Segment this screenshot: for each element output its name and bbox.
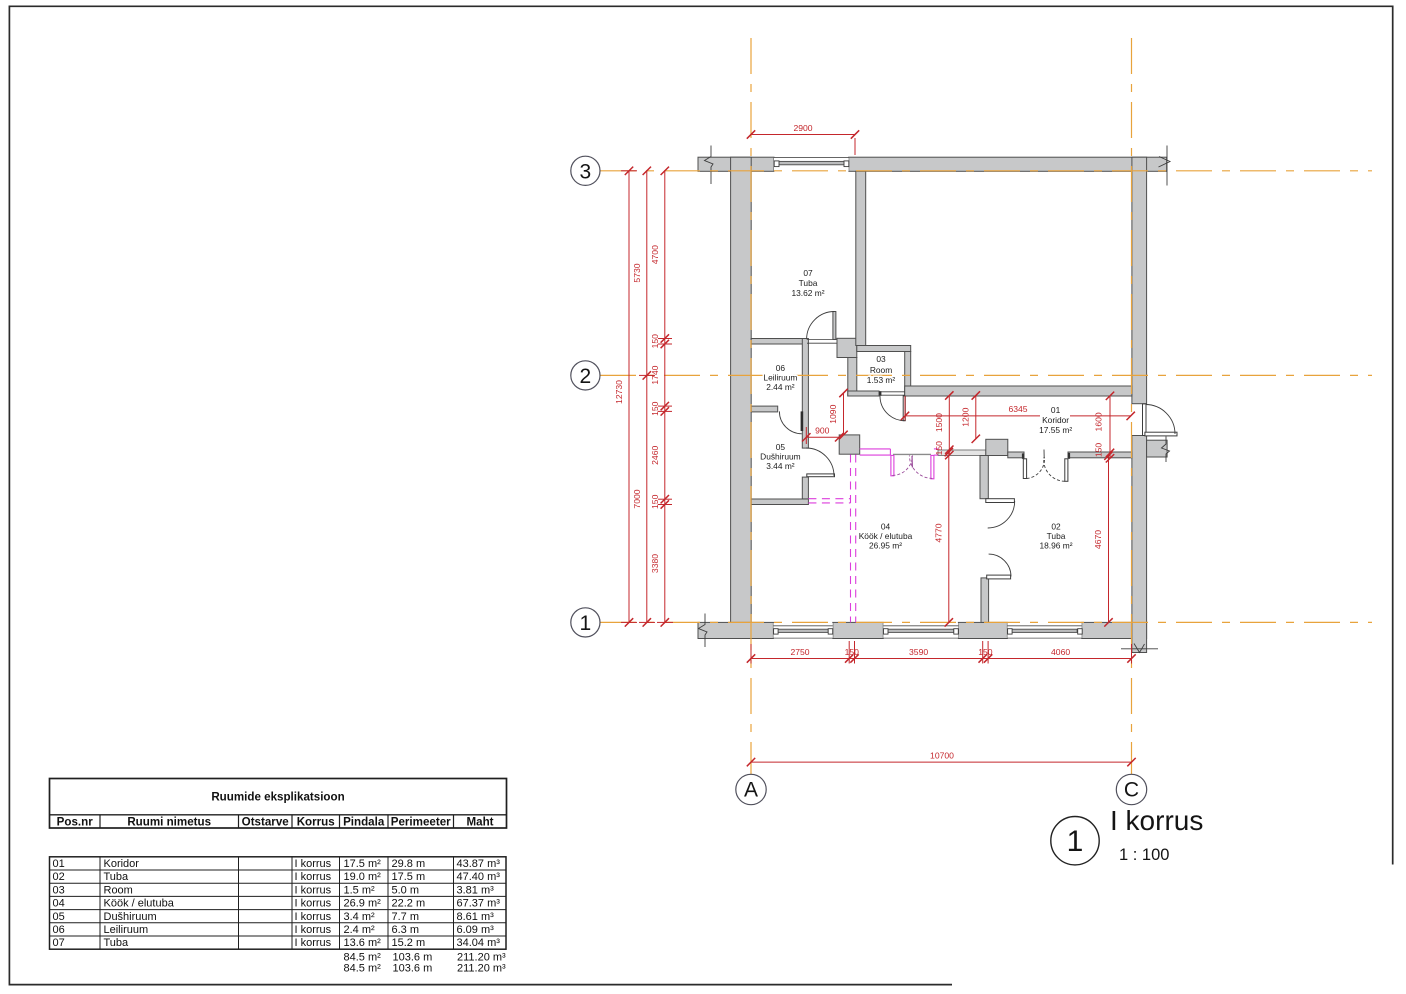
svg-text:I korrus: I korrus bbox=[295, 937, 332, 949]
svg-text:17.5 m: 17.5 m bbox=[392, 871, 426, 883]
svg-text:Köök / elutuba: Köök / elutuba bbox=[859, 531, 913, 541]
svg-text:47.40 m³: 47.40 m³ bbox=[457, 871, 501, 883]
svg-text:5730: 5730 bbox=[632, 263, 642, 282]
svg-text:17.55 m²: 17.55 m² bbox=[1039, 425, 1072, 435]
svg-text:6.09 m³: 6.09 m³ bbox=[457, 924, 495, 936]
svg-text:1740: 1740 bbox=[650, 365, 660, 384]
svg-text:5.0 m: 5.0 m bbox=[392, 884, 420, 896]
svg-text:7.7 m: 7.7 m bbox=[392, 911, 420, 923]
svg-text:1.53 m²: 1.53 m² bbox=[867, 375, 896, 385]
svg-text:1200: 1200 bbox=[961, 407, 971, 426]
svg-text:1.5 m²: 1.5 m² bbox=[344, 884, 376, 896]
svg-text:2: 2 bbox=[580, 365, 592, 388]
svg-text:2900: 2900 bbox=[793, 123, 812, 133]
svg-text:15.2 m: 15.2 m bbox=[392, 937, 426, 949]
svg-text:2460: 2460 bbox=[650, 446, 660, 465]
svg-text:150: 150 bbox=[1094, 443, 1104, 458]
svg-text:I korrus: I korrus bbox=[295, 871, 332, 883]
svg-text:6.3 m: 6.3 m bbox=[392, 924, 420, 936]
svg-text:Otstarve: Otstarve bbox=[242, 816, 290, 829]
svg-text:I korrus: I korrus bbox=[295, 898, 332, 910]
svg-text:Koridor: Koridor bbox=[104, 858, 140, 870]
svg-text:1: 1 bbox=[580, 612, 592, 635]
svg-text:Pos.nr: Pos.nr bbox=[57, 816, 94, 829]
svg-text:02: 02 bbox=[53, 871, 65, 883]
svg-text:Maht: Maht bbox=[466, 816, 493, 829]
svg-text:Leiliruum: Leiliruum bbox=[104, 924, 149, 936]
svg-text:150: 150 bbox=[978, 647, 993, 657]
svg-text:04: 04 bbox=[881, 522, 891, 532]
svg-text:05: 05 bbox=[53, 911, 65, 923]
svg-text:I korrus: I korrus bbox=[295, 858, 332, 870]
svg-text:150: 150 bbox=[845, 647, 860, 657]
svg-text:150: 150 bbox=[650, 334, 660, 349]
svg-text:7000: 7000 bbox=[632, 489, 642, 508]
svg-text:I korrus: I korrus bbox=[295, 924, 332, 936]
svg-text:1: 1 bbox=[1067, 825, 1084, 858]
svg-text:4670: 4670 bbox=[1093, 530, 1103, 549]
svg-text:103.6 m: 103.6 m bbox=[393, 963, 433, 975]
svg-text:Tuba: Tuba bbox=[799, 278, 818, 288]
svg-text:03: 03 bbox=[53, 884, 65, 896]
svg-text:2750: 2750 bbox=[790, 647, 809, 657]
svg-text:Tuba: Tuba bbox=[104, 871, 130, 883]
svg-text:Tuba: Tuba bbox=[104, 937, 130, 949]
svg-text:67.37 m³: 67.37 m³ bbox=[457, 898, 501, 910]
svg-text:22.2 m: 22.2 m bbox=[392, 898, 426, 910]
svg-text:Koridor: Koridor bbox=[1042, 415, 1069, 425]
svg-text:Korrus: Korrus bbox=[297, 816, 335, 829]
svg-text:A: A bbox=[744, 779, 758, 802]
svg-text:13.6 m²: 13.6 m² bbox=[344, 937, 382, 949]
svg-text:4060: 4060 bbox=[1051, 647, 1070, 657]
svg-text:2.4 m²: 2.4 m² bbox=[344, 924, 376, 936]
svg-text:1500: 1500 bbox=[934, 413, 944, 432]
svg-text:900: 900 bbox=[815, 426, 830, 436]
svg-text:150: 150 bbox=[934, 441, 944, 456]
svg-text:3.81 m³: 3.81 m³ bbox=[457, 884, 495, 896]
svg-text:84.5 m²: 84.5 m² bbox=[344, 963, 382, 975]
svg-text:4770: 4770 bbox=[934, 523, 944, 542]
svg-text:3.4 m²: 3.4 m² bbox=[344, 911, 376, 923]
svg-text:Ruumi nimetus: Ruumi nimetus bbox=[127, 816, 211, 829]
svg-text:Ruumide eksplikatsioon: Ruumide eksplikatsioon bbox=[211, 791, 344, 804]
svg-text:Dušhiruum: Dušhiruum bbox=[104, 911, 157, 923]
svg-text:1600: 1600 bbox=[1094, 412, 1104, 431]
svg-text:3.44 m²: 3.44 m² bbox=[766, 461, 795, 471]
svg-text:3: 3 bbox=[580, 160, 592, 183]
svg-text:3590: 3590 bbox=[909, 647, 928, 657]
svg-text:17.5 m²: 17.5 m² bbox=[344, 858, 382, 870]
svg-text:06: 06 bbox=[776, 363, 786, 373]
svg-text:1090: 1090 bbox=[828, 404, 838, 423]
svg-text:I korrus: I korrus bbox=[295, 911, 332, 923]
svg-text:26.9 m²: 26.9 m² bbox=[344, 898, 382, 910]
svg-text:3380: 3380 bbox=[650, 554, 660, 573]
svg-text:Perimeeter: Perimeeter bbox=[391, 816, 451, 829]
svg-text:02: 02 bbox=[1051, 522, 1061, 532]
svg-text:43.87 m³: 43.87 m³ bbox=[457, 858, 501, 870]
svg-text:06: 06 bbox=[53, 924, 65, 936]
svg-text:34.04 m³: 34.04 m³ bbox=[457, 937, 501, 949]
svg-text:12730: 12730 bbox=[614, 380, 624, 404]
svg-text:04: 04 bbox=[53, 898, 65, 910]
svg-text:Room: Room bbox=[104, 884, 133, 896]
svg-text:2.44 m²: 2.44 m² bbox=[766, 382, 795, 392]
svg-text:10700: 10700 bbox=[930, 750, 954, 760]
svg-text:01: 01 bbox=[53, 858, 65, 870]
svg-text:03: 03 bbox=[876, 354, 886, 364]
svg-text:Pindala: Pindala bbox=[343, 816, 385, 829]
svg-text:26.95 m²: 26.95 m² bbox=[869, 541, 902, 551]
svg-text:Dušhiruum: Dušhiruum bbox=[760, 452, 801, 462]
svg-text:13.62 m²: 13.62 m² bbox=[791, 288, 824, 298]
svg-text:4700: 4700 bbox=[650, 245, 660, 264]
svg-text:150: 150 bbox=[650, 401, 660, 416]
svg-text:I korrus: I korrus bbox=[1110, 805, 1203, 836]
svg-text:18.96 m²: 18.96 m² bbox=[1039, 541, 1072, 551]
svg-text:211.20 m³: 211.20 m³ bbox=[457, 963, 506, 975]
svg-text:Köök / elutuba: Köök / elutuba bbox=[104, 898, 175, 910]
svg-text:07: 07 bbox=[803, 268, 813, 278]
svg-text:Room: Room bbox=[870, 365, 892, 375]
svg-text:I korrus: I korrus bbox=[295, 884, 332, 896]
svg-text:01: 01 bbox=[1051, 405, 1061, 415]
svg-text:05: 05 bbox=[776, 442, 786, 452]
svg-text:07: 07 bbox=[53, 937, 65, 949]
svg-text:C: C bbox=[1124, 779, 1139, 802]
svg-text:150: 150 bbox=[650, 494, 660, 509]
svg-text:8.61 m³: 8.61 m³ bbox=[457, 911, 495, 923]
svg-text:19.0 m²: 19.0 m² bbox=[344, 871, 382, 883]
svg-text:6345: 6345 bbox=[1008, 404, 1027, 414]
svg-text:1 : 100: 1 : 100 bbox=[1119, 846, 1169, 864]
svg-text:Tuba: Tuba bbox=[1047, 531, 1066, 541]
svg-text:29.8 m: 29.8 m bbox=[392, 858, 426, 870]
